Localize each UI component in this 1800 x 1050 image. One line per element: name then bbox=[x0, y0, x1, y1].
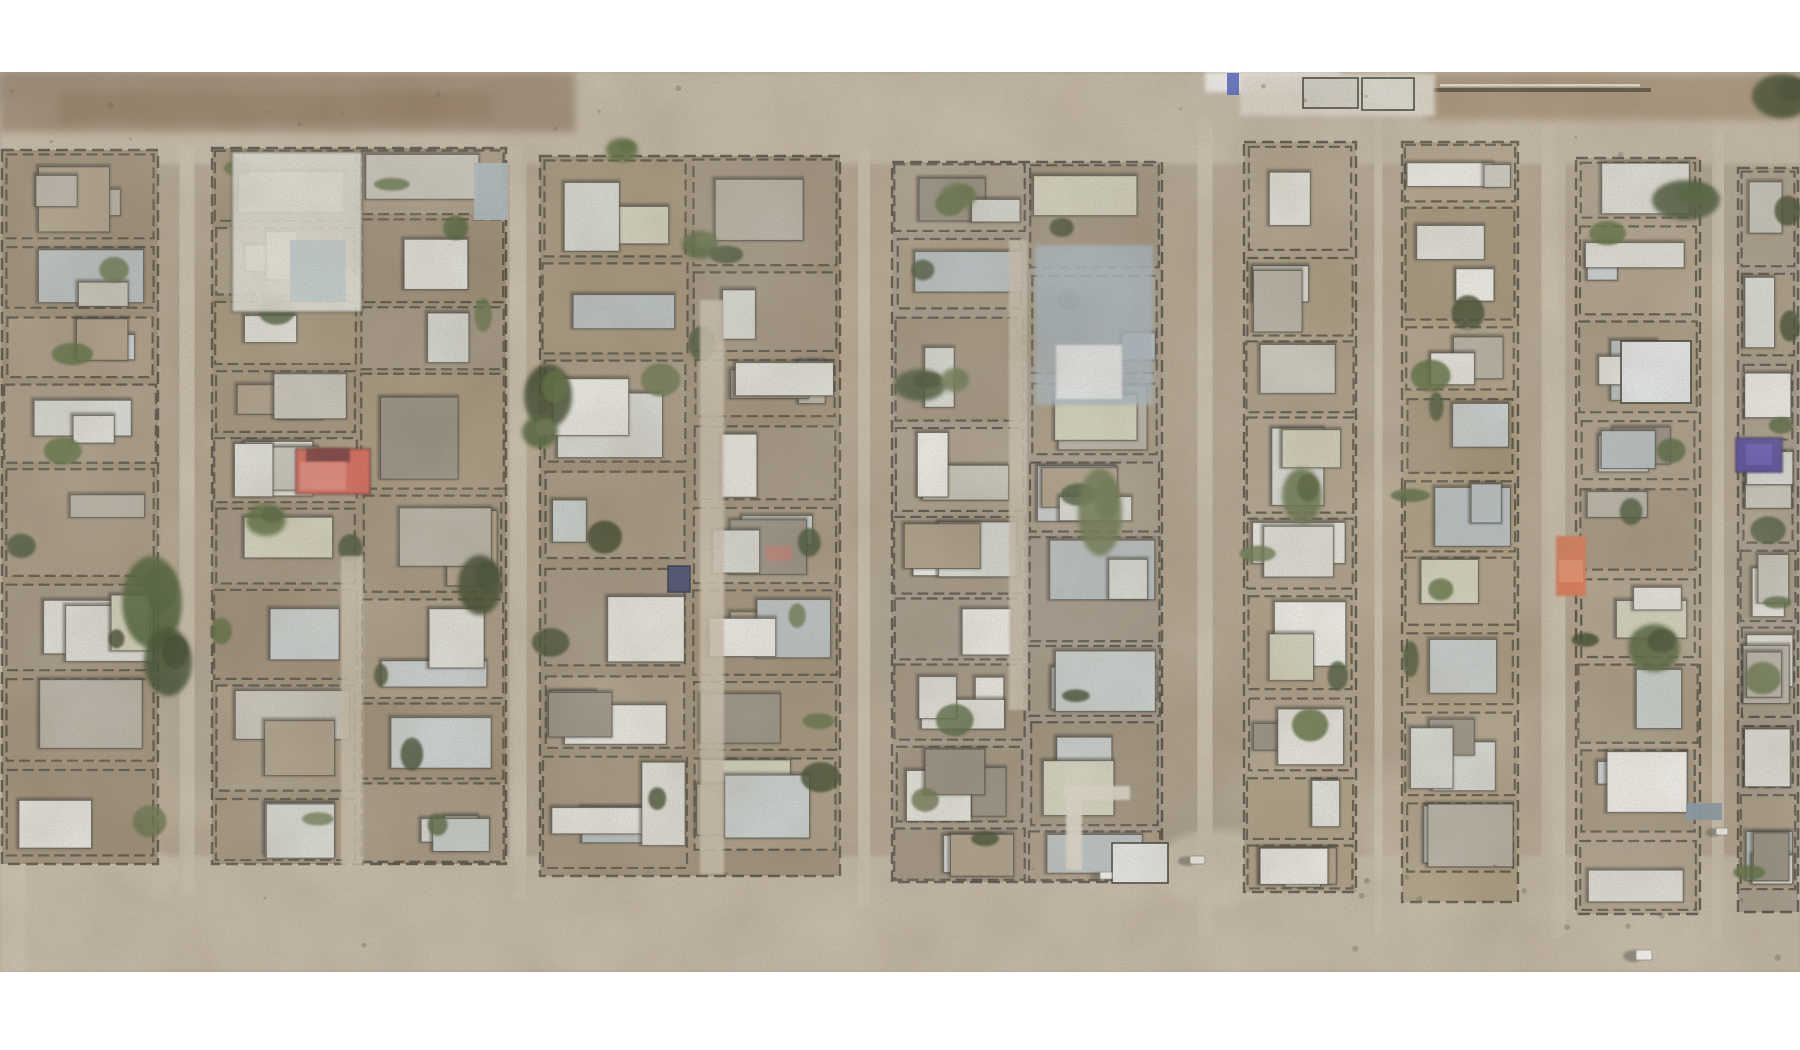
letterbox-top bbox=[0, 0, 1800, 72]
satellite-scene bbox=[0, 72, 1800, 972]
satellite-image bbox=[0, 72, 1800, 972]
fine-grain-noise bbox=[0, 72, 1800, 972]
letterbox-bottom bbox=[0, 972, 1800, 1050]
screenshot-canvas bbox=[0, 0, 1800, 1050]
grain-overlay bbox=[0, 72, 1800, 972]
